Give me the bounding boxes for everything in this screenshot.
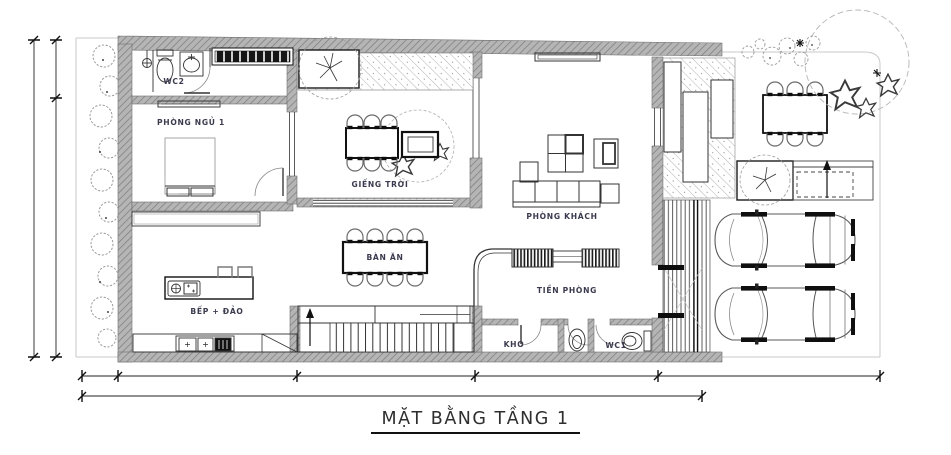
kitchen-island xyxy=(165,277,253,299)
armchair xyxy=(594,139,618,168)
room-kitchen xyxy=(132,212,297,352)
room-wc2 xyxy=(143,48,211,93)
service-rooms xyxy=(521,325,651,351)
room-foyer xyxy=(474,249,619,306)
coffee-table xyxy=(548,135,583,172)
sink-wc2-icon xyxy=(180,52,203,76)
shoe-cabinet xyxy=(582,249,619,267)
shoe-cabinet xyxy=(512,249,553,267)
island-cooktop-icon xyxy=(184,283,197,294)
deck-bench xyxy=(683,92,708,182)
sofa xyxy=(513,162,600,207)
room-label-bedroom1: PHÒNG NGỦ 1 xyxy=(157,117,225,127)
shrub-cluster xyxy=(742,36,881,77)
shower-icon xyxy=(143,50,152,68)
room-bedroom xyxy=(158,101,283,196)
car-2 xyxy=(715,284,855,345)
room-label-skylight: GIẾNG TRỜI xyxy=(352,179,409,189)
plan-title-row: MẶT BẰNG TẦNG 1 xyxy=(0,409,951,434)
entry-path xyxy=(793,160,873,200)
bed xyxy=(165,138,215,196)
room-label-kitchen: BẾP + ĐẢO xyxy=(190,306,243,316)
side-table xyxy=(601,184,619,203)
entry-arrow xyxy=(823,160,831,170)
entry-ramp xyxy=(658,200,710,352)
room-label-foyer: TIỀN PHÒNG xyxy=(537,285,597,295)
wall-bottom xyxy=(118,352,722,362)
landscape-shrub-row xyxy=(90,45,120,347)
deck-bench xyxy=(711,80,733,138)
floor-plan-drawing: WC2 PHÒNG NGỦ 1 GIẾNG TRỜI PHÒNG KHÁCH B… xyxy=(0,0,951,455)
room-label-storage: KHO xyxy=(504,340,525,349)
deck-bench xyxy=(664,62,681,152)
car-1 xyxy=(715,210,855,271)
garage xyxy=(715,210,855,345)
threshold-step xyxy=(658,313,684,318)
side-deck xyxy=(663,58,735,198)
plan-title: MẶT BẰNG TẦNG 1 xyxy=(371,409,579,434)
basin-icon xyxy=(569,329,585,351)
room-label-wc1: WC1 xyxy=(605,341,626,350)
room-living xyxy=(513,53,619,207)
room-label-living: PHÒNG KHÁCH xyxy=(526,212,597,221)
front-yard xyxy=(737,10,909,205)
room-labels: WC2 PHÒNG NGỦ 1 GIẾNG TRỜI PHÒNG KHÁCH B… xyxy=(157,77,627,350)
kitchen-counter xyxy=(133,334,297,352)
threshold-step xyxy=(658,265,684,270)
outdoor-dining-set xyxy=(763,82,827,146)
wall-left xyxy=(118,44,132,362)
room-label-dining: BÀN ĂN xyxy=(366,253,403,262)
room-skylight xyxy=(298,37,473,182)
staircase xyxy=(298,306,474,352)
wardrobe xyxy=(212,48,293,65)
stair-up-arrow xyxy=(306,308,314,346)
room-label-wc2: WC2 xyxy=(163,77,184,86)
floor-plan-sheet: WC2 PHÒNG NGỦ 1 GIẾNG TRỜI PHÒNG KHÁCH B… xyxy=(0,0,951,455)
